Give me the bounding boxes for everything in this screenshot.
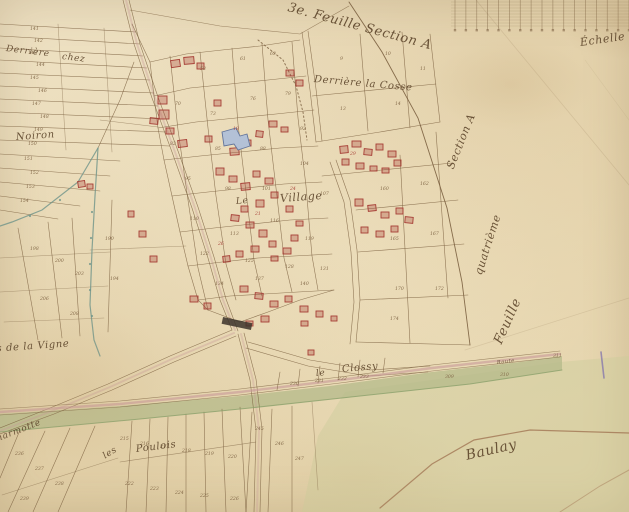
scale-grid-foot	[573, 29, 575, 31]
tree-dot	[91, 211, 93, 213]
parcel-number: 154	[20, 198, 29, 204]
parcel-number: 14	[395, 101, 401, 107]
scale-grid-foot	[486, 29, 488, 31]
parcel-number: 206	[39, 296, 49, 302]
building	[150, 256, 157, 262]
cadastral-map-scan: 1411421431441451461471481491501511521531…	[0, 0, 629, 512]
parcel-number: 125	[245, 258, 254, 264]
building	[259, 230, 267, 237]
parcel-number: 85	[215, 146, 221, 152]
building	[368, 205, 377, 212]
parcel-number: 116	[270, 218, 279, 224]
scale-grid-foot	[617, 29, 619, 31]
building	[376, 144, 383, 150]
parcel-number: 63	[270, 51, 276, 57]
parcel-line	[2, 458, 118, 495]
parcel-number: 225	[199, 493, 209, 499]
parcel-line	[104, 28, 112, 152]
parcel-number: 21	[254, 211, 261, 217]
parcel-line	[0, 286, 108, 292]
parcel-number: 11	[420, 66, 426, 72]
parcel-number: 167	[430, 231, 439, 237]
building	[300, 306, 308, 312]
parcel-number: 110	[190, 216, 199, 222]
parcel-line	[402, 32, 410, 128]
building	[388, 151, 396, 157]
parcel-line	[0, 154, 120, 161]
parcel-number: 13	[340, 106, 346, 112]
parcel-number: 143	[28, 50, 37, 56]
road	[126, 0, 235, 330]
parcel-line	[436, 132, 448, 298]
building	[340, 146, 349, 154]
parcel-line	[585, 60, 629, 120]
parcel-line	[430, 34, 440, 122]
tree-dot	[89, 289, 91, 291]
parcel-number: 247	[294, 456, 304, 462]
parcel-line	[0, 36, 140, 44]
building	[158, 96, 167, 104]
building	[396, 208, 403, 214]
parcel-number: 238	[54, 481, 64, 487]
parcel-number: 134	[215, 281, 224, 287]
parcel-number: 88	[260, 146, 266, 152]
building	[246, 222, 254, 228]
parcel-line	[58, 426, 95, 512]
parcel-line	[316, 122, 440, 142]
parcel-line	[146, 419, 150, 512]
parcel-number: 153	[26, 184, 35, 190]
parcel-number: 113	[230, 231, 239, 237]
parcel-number: 233	[359, 374, 369, 380]
building	[205, 136, 212, 142]
building	[190, 296, 198, 302]
building	[216, 168, 224, 175]
parcel-number: 98	[225, 186, 231, 192]
parcel-number: 309	[445, 374, 454, 380]
parcel-number: 79	[285, 91, 291, 97]
parcel-number: 142	[34, 38, 43, 44]
building	[296, 80, 303, 86]
parcel-number: 148	[40, 114, 49, 120]
parcel-number: 95	[185, 176, 191, 182]
tree-dot	[90, 237, 92, 239]
scale-grid-foot	[508, 29, 510, 31]
parcel-number: 216	[139, 441, 149, 447]
building	[286, 70, 294, 76]
tree-dot	[91, 315, 93, 317]
parcel-line	[90, 246, 186, 250]
building	[241, 183, 251, 191]
building	[296, 221, 303, 226]
parcel-line	[0, 168, 110, 176]
building	[381, 212, 389, 218]
parcel-number: 217	[159, 444, 169, 450]
parcel-line	[356, 342, 470, 345]
parcel-number: 203	[74, 271, 84, 277]
building	[214, 100, 221, 106]
parcel-line	[166, 417, 168, 512]
parcel-number: 76	[250, 96, 256, 102]
parcel-number: 149	[34, 127, 43, 133]
parcel-number: 146	[38, 88, 47, 94]
parcel-number: 172	[435, 286, 444, 292]
building	[364, 149, 372, 156]
scale-grid-foot	[497, 29, 499, 31]
building	[265, 178, 273, 184]
parcel-line	[0, 252, 110, 258]
parcel-line	[383, 358, 385, 373]
tree-dot	[59, 199, 61, 201]
building	[139, 231, 146, 237]
parcel-line	[360, 34, 368, 131]
parcel-number: 150	[28, 141, 37, 147]
building	[391, 226, 398, 232]
parcel-number: 128	[285, 264, 294, 270]
section-boundary	[349, 2, 470, 345]
parcel-number: 208	[69, 311, 79, 317]
building	[355, 199, 363, 206]
parcel-number: 165	[390, 236, 399, 242]
parcel-number: 122	[200, 251, 209, 257]
parcel-line	[0, 196, 80, 206]
parcel-line	[246, 412, 252, 512]
parcel-number: 160	[380, 186, 389, 192]
scale-grid-foot	[541, 29, 543, 31]
building	[394, 160, 401, 166]
building	[253, 171, 260, 177]
parcel-line	[312, 84, 436, 96]
parcel-line	[72, 218, 80, 336]
parcel-number: 245	[254, 426, 264, 432]
parcel-number: 137	[255, 276, 264, 282]
parcel-line	[0, 24, 136, 32]
building	[376, 231, 384, 237]
parcel-number: 174	[390, 316, 399, 322]
parcel-number: 222	[124, 481, 134, 487]
parcel-line	[336, 160, 360, 342]
parcel-number: 224	[174, 490, 184, 496]
building	[301, 321, 308, 326]
building	[87, 184, 93, 189]
parcel-number: 18	[233, 126, 239, 132]
building	[382, 168, 389, 173]
parcel-number: 215	[119, 436, 129, 442]
parcel-number: 231	[314, 378, 324, 384]
parcel-number: 190	[105, 236, 114, 242]
parcel-number: 218	[181, 448, 191, 454]
scale-grid-foot	[519, 29, 521, 31]
building	[361, 227, 368, 233]
building	[223, 256, 231, 263]
building	[78, 181, 86, 188]
parcel-number: 141	[30, 26, 39, 32]
building	[281, 127, 288, 132]
parcel-number: 162	[420, 181, 429, 187]
parcel-line	[0, 140, 170, 146]
building	[150, 118, 158, 125]
parcel-number: 145	[30, 75, 39, 81]
building	[255, 293, 263, 300]
parcel-number: 104	[300, 161, 309, 167]
parcel-number: 232	[337, 376, 347, 382]
parcel-line	[0, 60, 147, 68]
parcel-number: 101	[262, 186, 271, 192]
building	[178, 140, 188, 148]
parcel-line	[308, 31, 322, 141]
scale-grid-foot	[465, 29, 467, 31]
building	[171, 59, 181, 67]
building	[269, 241, 276, 247]
scale-grid-foot	[530, 29, 532, 31]
building	[128, 211, 134, 217]
parcel-line	[150, 40, 300, 62]
road	[244, 333, 262, 512]
parcel-number: 151	[24, 156, 33, 162]
parcel-number: 219	[204, 451, 214, 457]
building	[256, 200, 264, 207]
parcel-number: 194	[110, 276, 119, 282]
building	[342, 159, 349, 165]
building	[236, 251, 243, 257]
building	[269, 121, 277, 127]
parcel-line	[0, 48, 143, 56]
parcel-number: 230	[289, 381, 299, 387]
building	[308, 350, 314, 355]
building	[356, 163, 364, 169]
parcel-number: 198	[30, 246, 39, 252]
parcel-line	[108, 200, 112, 332]
parcel-number: 220	[227, 454, 237, 460]
parcel-line	[302, 32, 316, 142]
parcel-line	[158, 110, 314, 128]
parcel-number: 310	[500, 372, 509, 378]
parcel-number: 246	[274, 441, 284, 447]
building	[271, 192, 278, 198]
parcel-number: 73	[210, 111, 216, 117]
parcel-line	[0, 210, 58, 219]
parcel-number: 92	[300, 126, 306, 132]
parcel-number: 311	[553, 353, 562, 359]
scale-grid-foot	[595, 29, 597, 31]
building	[231, 215, 240, 222]
parcel-number: 24	[289, 186, 296, 192]
parcel-line	[48, 222, 62, 338]
building	[256, 131, 264, 138]
building	[166, 128, 174, 134]
parcel-line	[262, 44, 292, 292]
parcel-line	[0, 126, 166, 132]
building	[316, 311, 323, 317]
parcel-number: 236	[14, 451, 24, 457]
parcel-line	[465, 298, 629, 350]
parcel-number: 226	[229, 496, 239, 502]
parcel-line	[268, 409, 272, 512]
parcel-line	[170, 56, 208, 310]
building	[286, 206, 293, 212]
scale-grid-foot	[563, 29, 565, 31]
parcel-number: 200	[54, 258, 64, 264]
parcel-line	[100, 120, 158, 127]
parcel-line	[58, 24, 66, 150]
parcel-number: 26	[217, 241, 224, 247]
parcel-number: 170	[395, 286, 404, 292]
building	[251, 246, 259, 252]
parcel-line	[4, 318, 104, 322]
scale-grid-foot	[584, 29, 586, 31]
parcel-line	[0, 86, 154, 93]
building	[241, 206, 248, 212]
stream	[90, 148, 100, 356]
building	[352, 141, 361, 147]
building	[331, 316, 337, 321]
parcel-line	[130, 6, 349, 34]
parcel-number: 237	[34, 466, 44, 472]
road	[241, 334, 259, 512]
building	[261, 316, 269, 322]
parcel-line	[358, 244, 464, 252]
building	[229, 176, 237, 182]
building	[405, 217, 413, 224]
parcel-line	[222, 409, 226, 512]
parcel-line	[240, 407, 246, 512]
building	[283, 248, 291, 254]
parcel-number: 152	[30, 170, 39, 176]
parcel-number: 58	[200, 66, 206, 72]
parcel-number: 131	[320, 266, 329, 272]
building	[240, 286, 248, 292]
parcel-number: 9	[340, 56, 343, 62]
parcel-line	[154, 76, 306, 96]
scale-grid-foot	[476, 29, 478, 31]
parcel-number: 140	[300, 281, 309, 287]
parcel-line	[360, 295, 468, 300]
parcel-number: 107	[320, 191, 329, 197]
map-canvas: 1411421431441451461471481491501511521531…	[0, 0, 629, 512]
parcel-number: 239	[19, 496, 29, 502]
parcel-number: 147	[32, 101, 41, 107]
parcel-line	[0, 112, 162, 119]
parcel-line	[98, 62, 134, 148]
building	[291, 235, 298, 241]
building	[271, 256, 278, 261]
scale-grid-foot	[552, 29, 554, 31]
parcel-line	[0, 99, 158, 106]
tree-dot	[29, 215, 31, 217]
parcel-number: 82	[170, 141, 176, 147]
scale-grid-foot	[454, 29, 456, 31]
scale-grid-foot	[606, 29, 608, 31]
parcel-line	[126, 421, 132, 512]
parcel-line	[476, 0, 629, 185]
parcel-number: 144	[36, 62, 45, 68]
parcel-number: 10	[385, 51, 391, 57]
building	[270, 301, 278, 307]
parcel-number: 223	[149, 486, 159, 492]
parcel-number: 29	[349, 151, 356, 157]
building	[204, 303, 211, 309]
parcel-line	[18, 228, 38, 340]
building	[285, 296, 292, 302]
building	[370, 166, 377, 171]
parcel-number: 61	[240, 56, 246, 62]
building	[184, 57, 195, 65]
parcel-number: 119	[305, 236, 314, 242]
parcel-number: 70	[175, 101, 181, 107]
building	[159, 110, 169, 119]
road	[248, 342, 430, 370]
tree-dot	[89, 263, 91, 265]
